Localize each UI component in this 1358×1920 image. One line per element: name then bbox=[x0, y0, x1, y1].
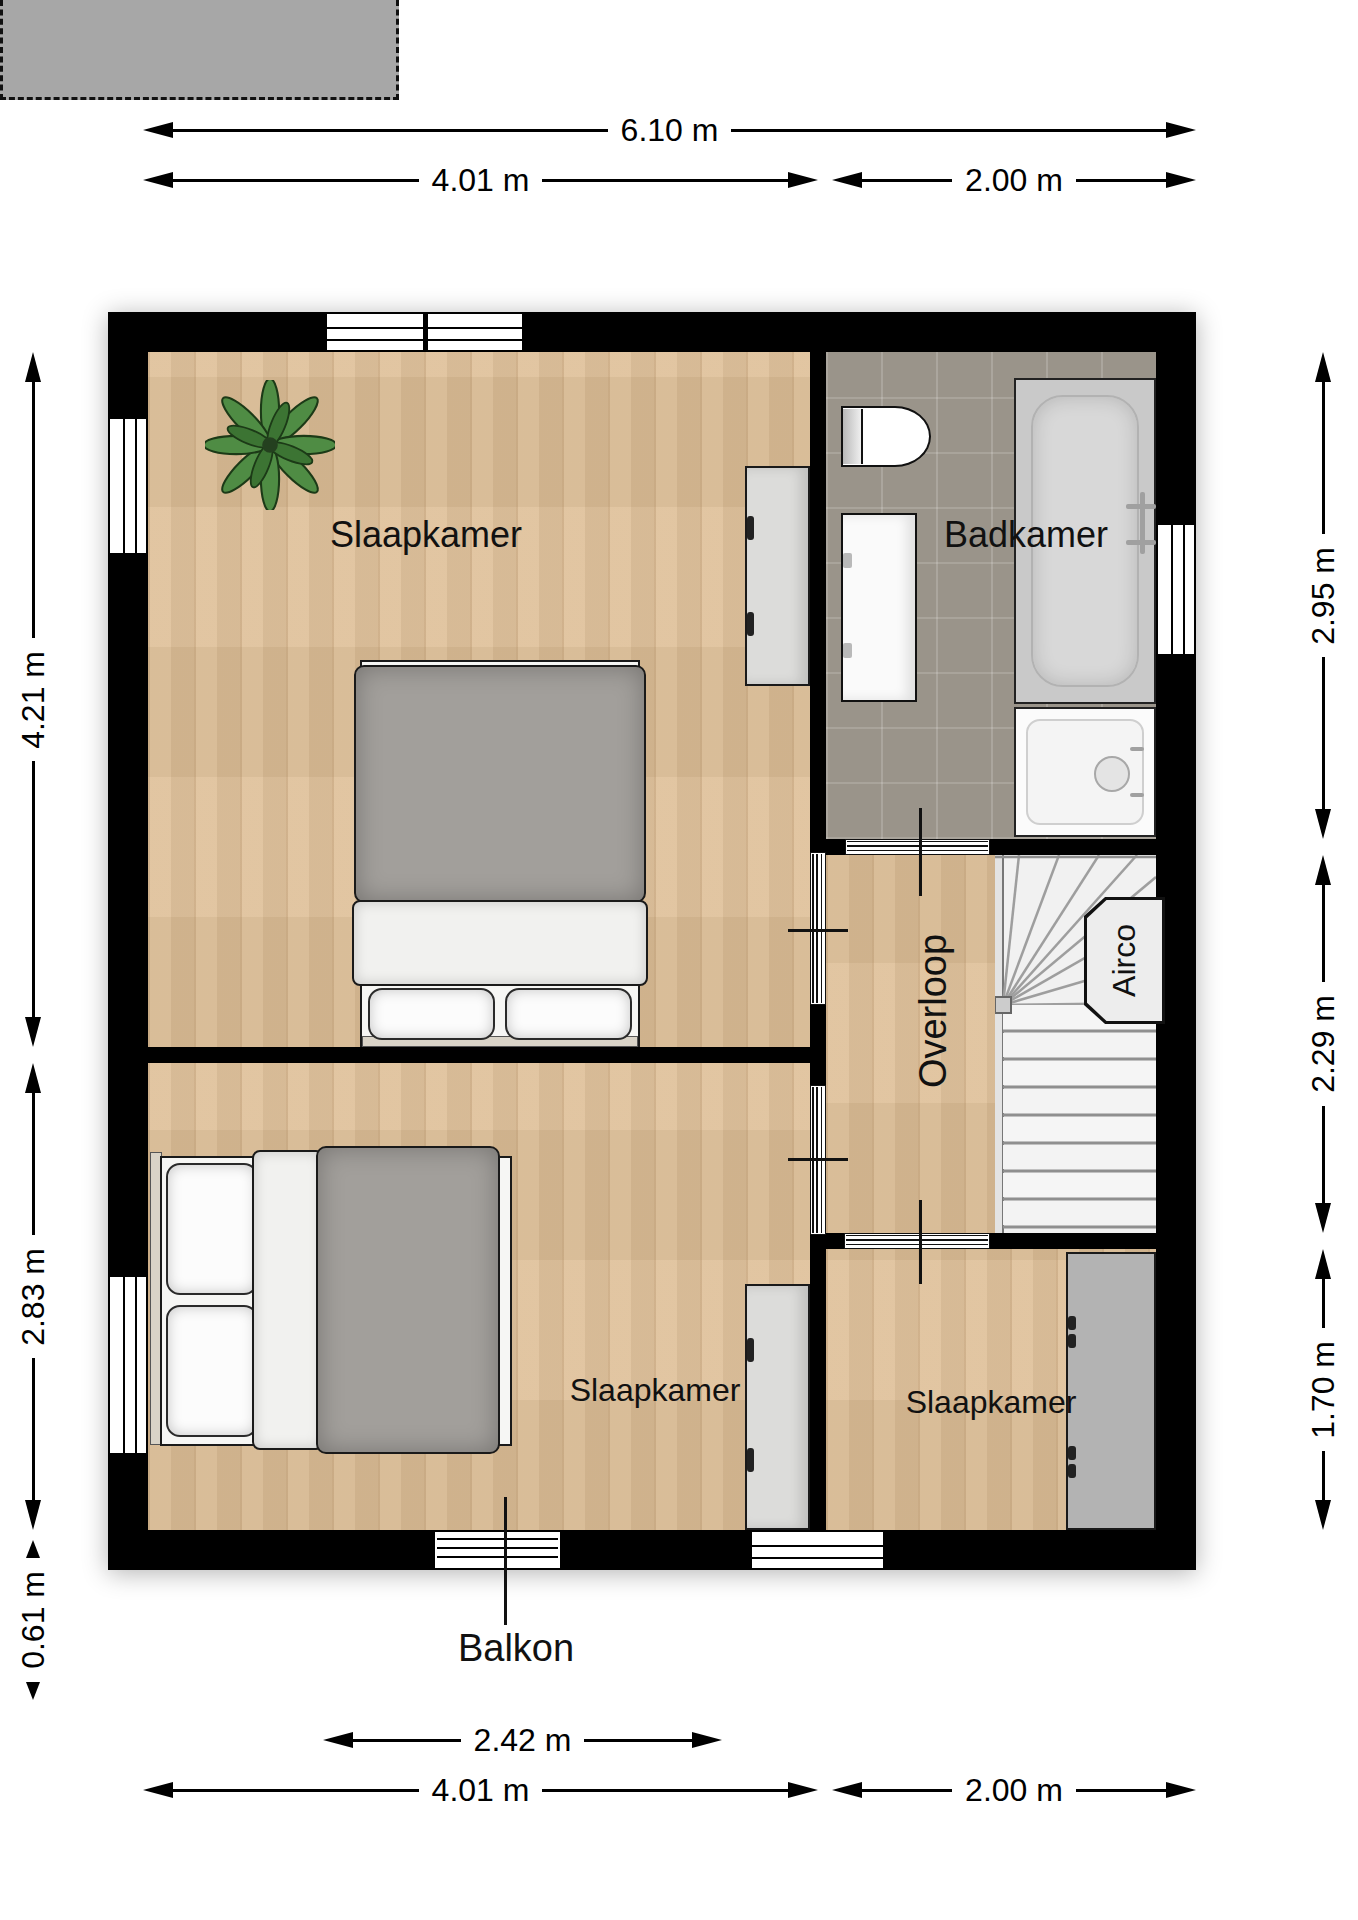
dimension-label: 4.21 m bbox=[17, 638, 49, 762]
arrowhead bbox=[25, 1500, 41, 1530]
dimension-line bbox=[32, 1358, 35, 1500]
room-label-bathroom: Badkamer bbox=[944, 514, 1108, 556]
shower bbox=[1014, 707, 1156, 837]
dimension-line bbox=[862, 1789, 952, 1792]
dimension-label: 2.95 m bbox=[1307, 534, 1339, 658]
arrowhead bbox=[323, 1732, 353, 1748]
faucet-icon bbox=[843, 643, 852, 658]
dimension-line bbox=[173, 129, 608, 132]
wardrobe-handle-icon bbox=[1068, 1446, 1076, 1460]
bedroom-bottom-left-door-tick bbox=[788, 1158, 848, 1161]
arrowhead bbox=[25, 1017, 41, 1047]
dimension-label: 0.61 m bbox=[17, 1558, 49, 1682]
arrowhead bbox=[1166, 172, 1196, 188]
room-label-bedroom-top-left: Slaapkamer bbox=[330, 514, 522, 556]
window-left-upper bbox=[108, 417, 148, 555]
dimension-left-upper: 4.21 m bbox=[15, 352, 51, 1047]
sliding-door-tracks bbox=[437, 1538, 558, 1562]
dimension-line bbox=[862, 179, 952, 182]
arrowhead bbox=[1166, 122, 1196, 138]
arrowhead bbox=[1315, 809, 1331, 839]
dimension-top-total: 6.10 m bbox=[143, 112, 1196, 148]
arrowhead bbox=[25, 1063, 41, 1093]
arrowhead bbox=[1315, 855, 1331, 885]
dresser-handle-icon bbox=[747, 516, 754, 540]
dimension-line bbox=[542, 179, 788, 182]
arrowhead bbox=[143, 172, 173, 188]
dimension-line bbox=[731, 129, 1166, 132]
airco-label: Airco bbox=[1106, 924, 1143, 997]
arrowhead bbox=[788, 172, 818, 188]
dresser-top-left bbox=[745, 466, 810, 686]
dimension-bottom-right: 2.00 m bbox=[832, 1772, 1196, 1808]
dimension-line bbox=[1322, 1106, 1325, 1203]
dimension-top-left: 4.01 m bbox=[143, 162, 818, 198]
dimension-top-right: 2.00 m bbox=[832, 162, 1196, 198]
balcony-leader-line bbox=[504, 1497, 507, 1625]
dimension-right-lower: 1.70 m bbox=[1305, 1249, 1341, 1530]
dimension-line bbox=[1076, 1789, 1166, 1792]
pillow bbox=[368, 988, 495, 1040]
dimension-label: 2.83 m bbox=[17, 1235, 49, 1359]
arrowhead bbox=[143, 122, 173, 138]
wall-bedrooms-divider bbox=[148, 1047, 826, 1063]
dimension-label: 2.00 m bbox=[952, 164, 1076, 196]
dimension-line bbox=[1322, 657, 1325, 809]
dimension-line bbox=[353, 1739, 461, 1742]
arrowhead bbox=[1315, 1500, 1331, 1530]
bedroom-bottom-right-door bbox=[844, 1233, 990, 1249]
dimension-bottom-balcony: 2.42 m bbox=[323, 1722, 722, 1758]
floor-plan: 6.10 m 4.01 m 2.00 m 4.21 m 2.83 m 0.61 … bbox=[0, 0, 1358, 1920]
arrowhead bbox=[26, 1540, 40, 1558]
bathroom-door bbox=[845, 839, 990, 855]
dresser-bottom-left bbox=[745, 1284, 810, 1530]
window-glass bbox=[1171, 524, 1185, 655]
dimension-line bbox=[32, 1093, 35, 1235]
bed-top-left-duvet bbox=[354, 665, 646, 903]
dimension-label: 2.29 m bbox=[1307, 982, 1339, 1106]
plant-icon bbox=[205, 380, 335, 510]
bathroom-door-tick bbox=[919, 808, 922, 896]
dimension-line bbox=[542, 1789, 788, 1792]
dresser-handle-icon bbox=[747, 1448, 754, 1472]
room-label-landing: Overloop bbox=[912, 934, 955, 1088]
balcony-floor bbox=[0, 0, 399, 100]
dimension-line bbox=[32, 382, 35, 638]
dimension-label: 2.42 m bbox=[461, 1724, 585, 1756]
room-label-bedroom-bottom-left: Slaapkamer bbox=[570, 1372, 741, 1409]
window-right-bathroom bbox=[1156, 523, 1196, 656]
bed-bottom-left-sheet bbox=[252, 1150, 324, 1450]
arrowhead bbox=[1315, 352, 1331, 382]
arrowhead bbox=[1315, 1203, 1331, 1233]
dimension-line bbox=[584, 1739, 692, 1742]
arrowhead bbox=[25, 352, 41, 382]
dimension-line bbox=[1076, 179, 1166, 182]
window-left-lower bbox=[108, 1275, 148, 1455]
door-leaf-lines bbox=[846, 1235, 988, 1247]
dimension-line bbox=[1322, 1451, 1325, 1500]
bed-top-left-sheet bbox=[352, 900, 648, 986]
toilet-tank bbox=[843, 409, 863, 464]
dimension-line bbox=[1322, 1279, 1325, 1328]
dresser-handle-icon bbox=[747, 1338, 754, 1362]
dimension-label: 4.01 m bbox=[419, 1774, 543, 1806]
dimension-right-middle: 2.29 m bbox=[1305, 855, 1341, 1233]
faucet-icon bbox=[843, 553, 852, 568]
dimension-label: 4.01 m bbox=[419, 164, 543, 196]
arrowhead bbox=[832, 1782, 862, 1798]
room-label-bedroom-bottom-right: Slaapkamer bbox=[906, 1384, 1077, 1421]
balcony-sliding-door bbox=[433, 1530, 562, 1570]
window-glass bbox=[123, 1276, 137, 1454]
window-glass bbox=[751, 1545, 884, 1559]
arrowhead bbox=[26, 1682, 40, 1700]
arrowhead bbox=[1166, 1782, 1196, 1798]
pillow bbox=[505, 988, 632, 1040]
window-bottom-bedroom bbox=[750, 1530, 885, 1570]
dimension-line bbox=[1322, 382, 1325, 534]
dimension-left-balcony: 0.61 m bbox=[15, 1560, 51, 1680]
wall-bottom bbox=[108, 1530, 1196, 1570]
arrowhead bbox=[1315, 1249, 1331, 1279]
toilet bbox=[841, 406, 931, 467]
door-leaf-lines bbox=[847, 841, 988, 853]
wardrobe bbox=[1066, 1252, 1156, 1530]
arrowhead bbox=[788, 1782, 818, 1798]
wardrobe-handle-icon bbox=[1068, 1464, 1076, 1478]
arrowhead bbox=[143, 1782, 173, 1798]
dimension-bottom-left: 4.01 m bbox=[143, 1772, 818, 1808]
window-top-bedroom bbox=[325, 312, 524, 352]
bedroom-top-left-door-tick bbox=[788, 929, 848, 932]
bedroom-bottom-right-door-tick bbox=[919, 1200, 922, 1284]
dimension-left-lower: 2.83 m bbox=[15, 1063, 51, 1530]
bed-bottom-left-duvet bbox=[316, 1146, 500, 1454]
bathtub-faucet-icon bbox=[1126, 504, 1156, 509]
dimension-line bbox=[173, 179, 419, 182]
pillow bbox=[166, 1305, 258, 1437]
washbasin-cabinet bbox=[841, 513, 917, 702]
room-label-balcony: Balkon bbox=[458, 1627, 574, 1670]
pillow bbox=[166, 1163, 258, 1295]
dimension-line bbox=[32, 761, 35, 1017]
wardrobe-handle-icon bbox=[1068, 1334, 1076, 1348]
dimension-label: 2.00 m bbox=[952, 1774, 1076, 1806]
airco-unit-body: Airco bbox=[1087, 900, 1162, 1021]
dimension-label: 6.10 m bbox=[608, 114, 732, 146]
bathtub-faucet-icon bbox=[1126, 540, 1156, 545]
arrowhead bbox=[692, 1732, 722, 1748]
window-mullion bbox=[423, 314, 428, 350]
wall-top bbox=[108, 312, 1196, 352]
dimension-right-upper: 2.95 m bbox=[1305, 352, 1341, 839]
shower-handle-icon bbox=[1130, 747, 1144, 751]
airco-unit: Airco bbox=[1084, 897, 1165, 1024]
shower-handle-icon bbox=[1130, 793, 1144, 797]
dimension-line bbox=[173, 1789, 419, 1792]
window-glass bbox=[123, 418, 137, 554]
wardrobe-handle-icon bbox=[1068, 1316, 1076, 1330]
dimension-label: 1.70 m bbox=[1307, 1328, 1339, 1452]
dresser-handle-icon bbox=[747, 612, 754, 636]
arrowhead bbox=[832, 172, 862, 188]
dimension-line bbox=[1322, 885, 1325, 982]
shower-drain-icon bbox=[1094, 756, 1130, 792]
